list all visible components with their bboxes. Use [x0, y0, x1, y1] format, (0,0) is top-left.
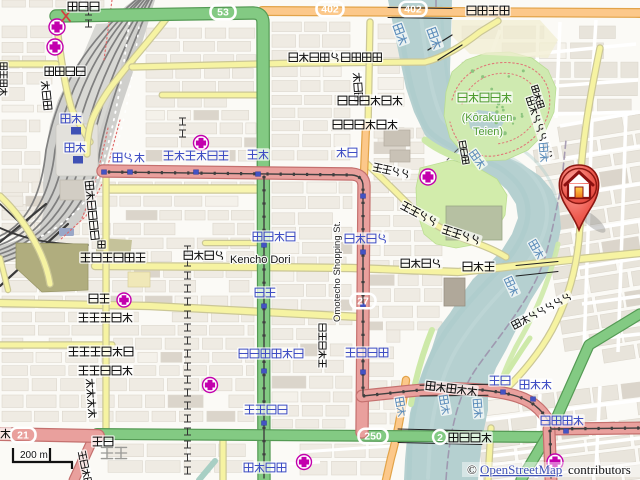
svg-text:21: 21 — [17, 430, 29, 442]
svg-text:©: © — [467, 462, 477, 477]
svg-text:402: 402 — [321, 4, 339, 16]
svg-text:Kencho Dori: Kencho Dori — [230, 254, 291, 266]
svg-text:200 m: 200 m — [20, 450, 48, 461]
svg-text:2: 2 — [437, 432, 443, 444]
svg-text:250: 250 — [364, 431, 382, 443]
svg-text:OpenStreetMap: OpenStreetMap — [480, 462, 562, 477]
svg-text:Omotecho Shopping St.: Omotecho Shopping St. — [332, 221, 343, 322]
svg-text:contributors: contributors — [568, 462, 631, 477]
svg-text:53: 53 — [217, 7, 229, 19]
svg-text:Teien): Teien) — [473, 126, 503, 138]
svg-text:(Kōrakuen: (Kōrakuen — [462, 112, 513, 124]
svg-text:402: 402 — [404, 4, 422, 16]
svg-text:27: 27 — [357, 296, 369, 308]
